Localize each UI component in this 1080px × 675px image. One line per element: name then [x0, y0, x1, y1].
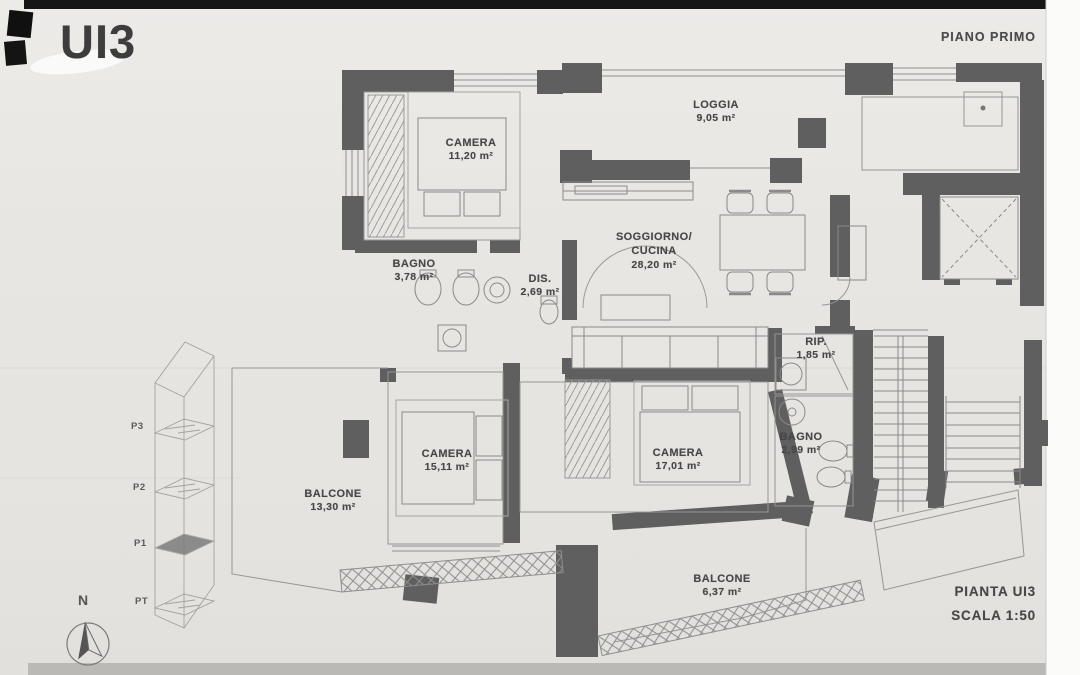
scale-label: SCALA 1:50 [951, 608, 1036, 623]
floor-plan-drawing [0, 0, 1080, 675]
room-label-camera-1: CAMERA 11,20 m² [446, 136, 497, 164]
room-label-dis: DIS. 2,69 m² [521, 272, 560, 300]
kitchen-counter [563, 182, 693, 200]
level-label-pt: PT [135, 596, 148, 607]
key-plan-drawing [155, 342, 214, 628]
title-block: PIANTA UI3 SCALA 1:50 [951, 584, 1036, 623]
room-label-bagno-2: BAGNO 2,99 m² [780, 430, 823, 458]
room-label-bagno-1: BAGNO 3,78 m² [393, 257, 436, 285]
room-label-balcone-1: BALCONE 13,30 m² [304, 487, 361, 515]
scanned-floor-plan-page: UI3 PIANO PRIMO PIANTA UI3 SCALA 1:50 CA… [0, 0, 1080, 675]
key-plan-highlight-p1 [155, 534, 214, 555]
north-label: N [78, 592, 88, 608]
room-label-camera-2: CAMERA 15,11 m² [422, 447, 473, 475]
dining-set [720, 191, 805, 294]
staircase [873, 330, 1020, 512]
north-compass-icon [64, 619, 112, 667]
level-label-p2: P2 [133, 482, 146, 493]
floor-label: PIANO PRIMO [941, 30, 1036, 44]
room-label-balcone-2: BALCONE 6,37 m² [693, 572, 750, 600]
room-label-camera-3: CAMERA 17,01 m² [653, 446, 704, 474]
level-label-p1: P1 [134, 538, 147, 549]
room-label-rip: RIP. 1,85 m² [797, 335, 836, 363]
balcony-railings [340, 551, 864, 656]
unit-title: UI3 [60, 14, 136, 69]
room-label-loggia: LOGGIA 9,05 m² [693, 98, 739, 126]
room-label-soggiorno-cucina: SOGGIORNO/ CUCINA 28,20 m² [616, 230, 692, 272]
plan-name-label: PIANTA UI3 [951, 584, 1036, 599]
level-label-p3: P3 [131, 421, 144, 432]
